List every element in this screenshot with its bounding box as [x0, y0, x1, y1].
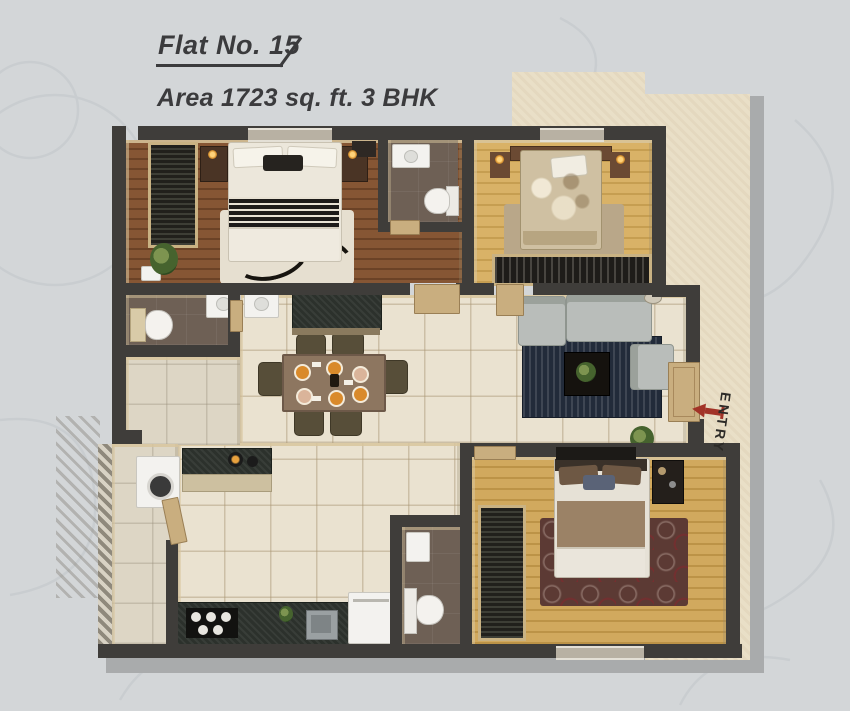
master-bath-door — [390, 220, 420, 235]
wall-bath3-left — [390, 515, 402, 644]
bed-blanket — [557, 501, 645, 547]
bed-accent-pillow — [263, 155, 303, 171]
burner — [198, 625, 208, 635]
plate — [352, 366, 369, 383]
bedroom3-window — [556, 646, 644, 660]
burner — [221, 612, 231, 622]
master-bath-basin — [392, 144, 430, 168]
bed-foot-fold — [229, 227, 339, 261]
master-plant — [150, 243, 178, 275]
wall-bath1-left — [378, 138, 388, 232]
bed-striped-blanket — [229, 197, 339, 227]
floor-plan: ENTRY — [0, 0, 850, 711]
coffee-table-plant — [576, 362, 596, 382]
kitchen-sink — [306, 610, 338, 640]
table-lamp-icon — [616, 155, 625, 164]
bedroom3-tv-panel — [556, 447, 636, 460]
passage-floor — [126, 357, 240, 445]
bedroom3-dresser — [652, 460, 684, 504]
wall-bedroom2-left — [462, 138, 474, 295]
basin-bowl — [254, 297, 269, 311]
toilet-bowl — [424, 188, 450, 214]
burner — [206, 612, 216, 622]
wall-right-bedroom2 — [652, 126, 666, 297]
master-bedroom-door — [414, 284, 460, 314]
plate — [352, 386, 369, 403]
table-lamp-icon — [348, 150, 357, 159]
crockery-counter-front — [292, 328, 380, 335]
dresser-items — [658, 467, 666, 475]
plate — [296, 388, 313, 405]
corridor-top — [512, 72, 645, 130]
exterior-louver-hatch — [56, 416, 100, 598]
napkin — [312, 362, 321, 367]
wall-left — [112, 126, 126, 444]
bedroom3-wardrobe — [478, 505, 526, 641]
plan-shadow-bottom — [106, 658, 764, 673]
master-wardrobe — [148, 142, 198, 248]
bedroom2-door — [496, 284, 524, 316]
kitchen-counter-top — [182, 448, 272, 476]
wall-bottom — [98, 644, 742, 658]
dining-chair — [294, 408, 324, 436]
bedroom2-wardrobe — [492, 254, 652, 286]
master-double-bed — [228, 142, 342, 262]
bed-foot-fold — [557, 547, 645, 577]
bedroom3-door — [474, 446, 516, 460]
plan-shadow-right — [750, 96, 764, 670]
toilet-bowl — [416, 595, 444, 625]
bathroom3-basin — [406, 532, 430, 562]
appliance-handle — [353, 599, 389, 602]
bed-accent-pillow — [583, 475, 615, 490]
napkin — [312, 396, 321, 401]
bathroom3-toilet — [404, 588, 444, 632]
basin-bowl — [404, 150, 418, 163]
dishwasher — [348, 592, 394, 644]
cooking-pot — [228, 452, 243, 467]
wall-master-south-a — [126, 283, 410, 295]
washer-door — [147, 473, 174, 500]
crockery-counter — [292, 294, 382, 330]
dresser-items — [669, 481, 676, 488]
common-bath-door — [230, 300, 243, 332]
master-window — [248, 128, 332, 142]
wall-utility-kitchen — [166, 540, 178, 644]
toilet-tank — [130, 308, 146, 342]
common-toilet — [130, 306, 172, 342]
burner — [213, 625, 223, 635]
bedroom2-window — [540, 128, 604, 142]
sink-basin — [311, 615, 331, 633]
wall-step-living — [652, 285, 700, 297]
wall-commonbath-bottom — [112, 345, 240, 357]
napkin — [344, 380, 353, 385]
page: { "header": { "flat_label": "Flat No. 15… — [0, 0, 850, 711]
burner — [191, 612, 201, 622]
gas-hob — [186, 608, 238, 638]
dining-chair — [330, 408, 362, 436]
wall-master-south-c — [533, 283, 652, 295]
table-centerpiece — [330, 374, 339, 387]
plate — [328, 390, 345, 407]
entry-arrow-head — [691, 402, 706, 418]
wall-right-living — [686, 297, 700, 367]
plate — [294, 364, 311, 381]
utility-louver-screen — [98, 444, 112, 644]
wall-right-bedroom3 — [726, 457, 740, 658]
table-lamp-icon — [495, 155, 504, 164]
bed-crumpled-duvet — [523, 165, 597, 231]
wall-bedroom3-left — [460, 457, 472, 644]
bedroom2-double-bed — [520, 150, 602, 250]
toilet-bowl — [145, 310, 173, 340]
dining-chair — [258, 362, 285, 396]
bedroom3-double-bed — [554, 458, 650, 578]
wall-left-stub — [112, 430, 142, 444]
kitchen-counter-front — [182, 474, 272, 492]
master-bath-toilet — [424, 184, 458, 216]
table-lamp-icon — [208, 150, 217, 159]
sofa-two-seater — [518, 296, 566, 346]
bed-foot-band — [523, 231, 597, 245]
sofa-three-seater — [566, 294, 652, 342]
kitchen-plant — [279, 606, 293, 622]
cooking-pot — [247, 456, 258, 467]
